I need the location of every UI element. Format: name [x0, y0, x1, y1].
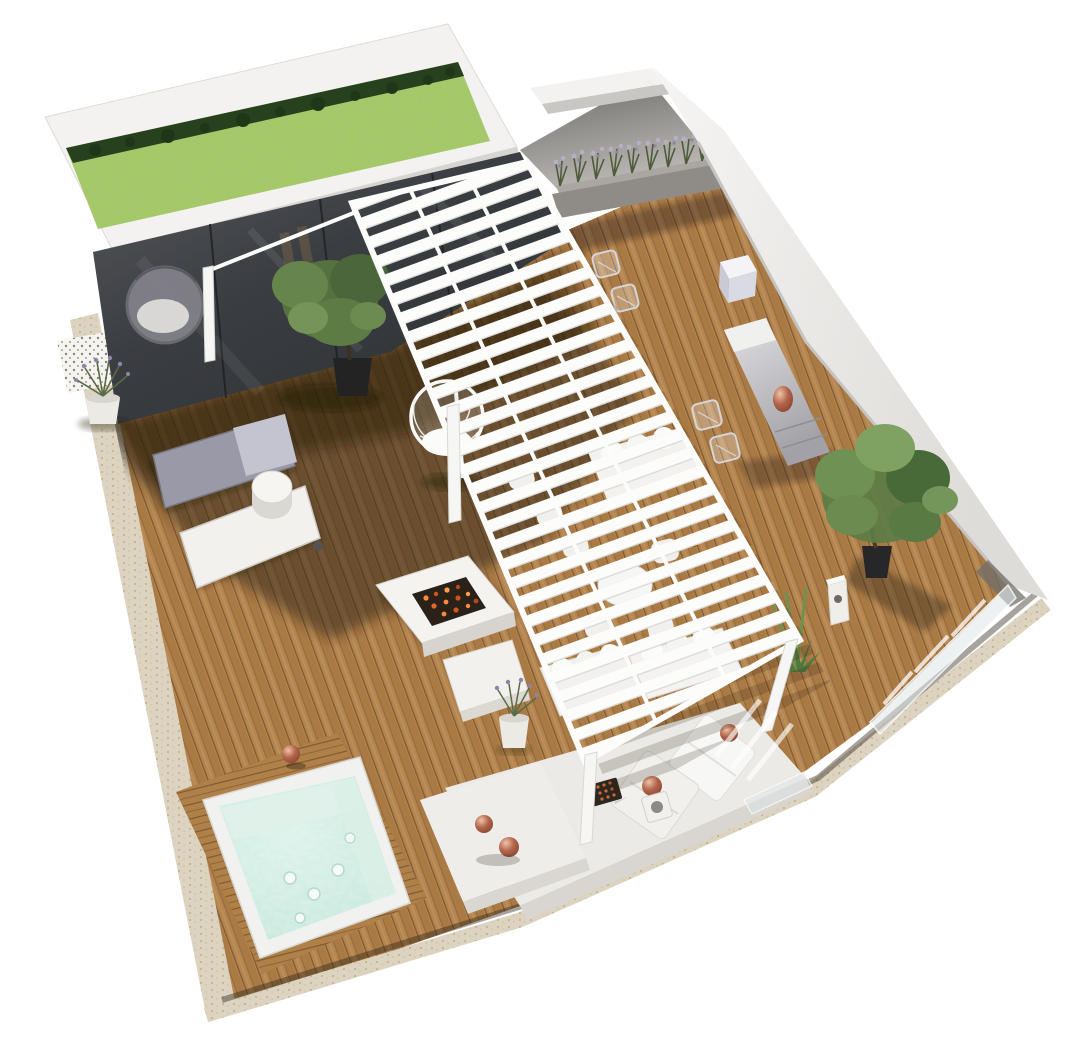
lounger-wheel [313, 541, 323, 551]
copper-lantern [282, 745, 300, 763]
pergola-post-nw [203, 266, 215, 362]
tree-pot [333, 358, 372, 396]
copper-vessel [773, 386, 793, 412]
render-canvas [0, 0, 1080, 1043]
copper-vase-3 [475, 815, 493, 833]
pergola-post-w [447, 404, 461, 523]
bar-stool-4 [709, 432, 741, 464]
olive-pot [862, 546, 892, 578]
rooftop-terrace-render [0, 0, 1080, 1043]
cube-stool [719, 255, 757, 303]
copper-lantern-shadow [286, 763, 306, 770]
copper-vase-4 [499, 837, 519, 857]
bar-stool-3 [691, 399, 723, 431]
side-table [252, 471, 292, 519]
rattan-chair-reflection [127, 267, 203, 343]
